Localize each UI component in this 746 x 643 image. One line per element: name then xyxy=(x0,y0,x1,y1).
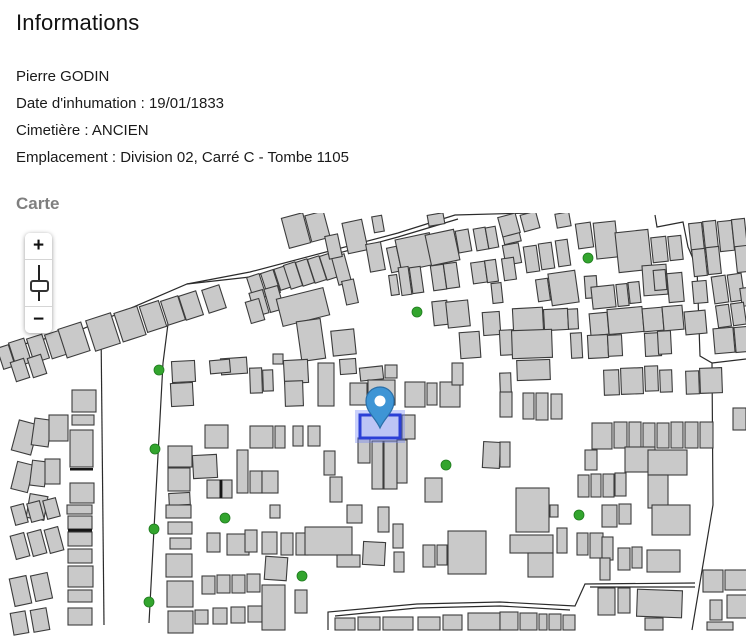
grave-plot[interactable] xyxy=(205,425,228,448)
grave-plot[interactable] xyxy=(645,618,663,630)
grave-plot[interactable] xyxy=(250,471,262,493)
grave-plot[interactable] xyxy=(405,382,425,407)
grave-plot[interactable] xyxy=(308,426,320,446)
grave-plot[interactable] xyxy=(170,382,193,406)
grave-plot[interactable] xyxy=(202,285,227,313)
grave-plot[interactable] xyxy=(385,365,397,378)
cemetery-map-canvas[interactable] xyxy=(0,213,746,643)
plot-location-line: Emplacement : Division 02, Carré C - Tom… xyxy=(16,144,730,171)
grave-plot[interactable] xyxy=(516,488,549,532)
grave-plot[interactable] xyxy=(660,370,673,392)
grave-plot[interactable] xyxy=(70,483,94,503)
grave-plot[interactable] xyxy=(549,614,561,630)
grave-plot[interactable] xyxy=(510,535,553,553)
grave-plot[interactable] xyxy=(685,422,698,448)
grave-plot[interactable] xyxy=(692,280,708,303)
grave-plot[interactable] xyxy=(285,381,304,407)
grave-plot[interactable] xyxy=(30,573,52,602)
grave-plot[interactable] xyxy=(389,275,400,296)
grave-plot[interactable] xyxy=(706,246,722,274)
grave-plot[interactable] xyxy=(619,504,631,524)
grave-plot[interactable] xyxy=(662,305,684,331)
grave-plot[interactable] xyxy=(168,468,190,491)
grave-plot[interactable] xyxy=(557,528,567,553)
grave-plot[interactable] xyxy=(171,360,195,382)
grave-plot[interactable] xyxy=(393,524,403,548)
grave-plot[interactable] xyxy=(237,450,248,493)
grave-plot[interactable] xyxy=(262,471,278,493)
grave-plot[interactable] xyxy=(275,426,285,448)
grave-plot[interactable] xyxy=(9,576,31,607)
zoom-slider-knob[interactable] xyxy=(30,280,49,292)
grave-plot[interactable] xyxy=(604,370,620,396)
zoom-in-button[interactable]: + xyxy=(25,233,52,260)
grave-plot[interactable] xyxy=(68,608,92,625)
grave-plot[interactable] xyxy=(27,530,47,557)
grave-plot[interactable] xyxy=(482,442,500,469)
grave-plot[interactable] xyxy=(305,527,352,555)
path-boundary-line xyxy=(101,327,104,625)
grave-plot[interactable] xyxy=(485,259,499,282)
grave-plot[interactable] xyxy=(523,245,539,273)
grave-plot[interactable] xyxy=(502,257,517,280)
grave-plot[interactable] xyxy=(192,454,217,478)
grave-plot[interactable] xyxy=(734,326,746,352)
grave-plot[interactable] xyxy=(703,570,723,592)
grave-plot[interactable] xyxy=(716,304,732,328)
grave-plot[interactable] xyxy=(170,538,191,549)
grave-plot[interactable] xyxy=(607,335,622,357)
grave-plot[interactable] xyxy=(593,221,619,259)
grave-plot[interactable] xyxy=(247,574,260,592)
grave-plot[interactable] xyxy=(324,451,335,475)
grave-plot[interactable] xyxy=(468,613,500,630)
grave-plot[interactable] xyxy=(30,608,50,632)
grave-plot[interactable] xyxy=(536,278,551,301)
grave-plot[interactable] xyxy=(43,498,60,520)
grave-plot[interactable] xyxy=(448,531,486,574)
grave-plot[interactable] xyxy=(603,474,614,497)
path-boundary-line xyxy=(712,359,746,363)
grave-plot[interactable] xyxy=(362,541,385,565)
grave-plot[interactable] xyxy=(731,218,746,249)
grave-plot[interactable] xyxy=(281,533,293,555)
grave-plot[interactable] xyxy=(615,473,626,496)
grave-plot[interactable] xyxy=(491,283,503,304)
grave-plot[interactable] xyxy=(577,533,588,555)
grave-plot[interactable] xyxy=(68,516,92,529)
grave-plot[interactable] xyxy=(575,222,593,249)
grave-plot[interactable] xyxy=(335,618,355,630)
grave-plot[interactable] xyxy=(550,505,558,517)
grave-plot[interactable] xyxy=(330,477,342,502)
grave-plot[interactable] xyxy=(283,359,308,383)
zoom-out-button[interactable]: − xyxy=(25,306,52,333)
grave-plot[interactable] xyxy=(167,581,193,607)
grave-plot[interactable] xyxy=(648,450,687,475)
grave-plot[interactable] xyxy=(598,588,615,615)
grave-plot[interactable] xyxy=(567,309,578,329)
grave-plot[interactable] xyxy=(166,554,192,577)
grave-plot[interactable] xyxy=(589,312,609,335)
grave-plot[interactable] xyxy=(710,600,722,620)
grave-plot[interactable] xyxy=(358,617,380,630)
grave-plot[interactable] xyxy=(68,532,92,546)
cemetery-record-page: { "page": { "title": "Informations", "ma… xyxy=(0,0,746,643)
grave-plot[interactable] xyxy=(72,390,96,412)
map-section-title: Carte xyxy=(16,194,730,214)
grave-plot[interactable] xyxy=(245,530,257,552)
grave-plot[interactable] xyxy=(528,553,553,577)
grave-plot[interactable] xyxy=(652,505,690,535)
grave-plot[interactable] xyxy=(207,533,220,552)
grave-plot[interactable] xyxy=(602,505,617,527)
grave-plot[interactable] xyxy=(347,505,362,523)
deceased-name: Pierre GODIN xyxy=(16,63,730,90)
grave-plot[interactable] xyxy=(10,611,29,635)
grave-plot[interactable] xyxy=(318,363,334,406)
grave-plot[interactable] xyxy=(342,219,368,253)
grave-plot[interactable] xyxy=(427,213,445,226)
grave-plot[interactable] xyxy=(647,550,680,572)
grave-plot[interactable] xyxy=(648,475,668,508)
grave-plot[interactable] xyxy=(671,422,683,448)
grave-plot[interactable] xyxy=(523,393,534,419)
grave-plot[interactable] xyxy=(273,354,283,364)
grave-plot[interactable] xyxy=(616,283,629,306)
grave-plot[interactable] xyxy=(67,505,92,514)
grave-plot[interactable] xyxy=(628,281,641,303)
grave-plot[interactable] xyxy=(538,242,554,270)
grave-plot[interactable] xyxy=(359,366,383,381)
grave-plot[interactable] xyxy=(700,422,713,448)
grave-plot[interactable] xyxy=(482,311,501,335)
grave-plot[interactable] xyxy=(263,370,274,391)
grave-plot[interactable] xyxy=(293,426,303,446)
grave-plot[interactable] xyxy=(585,450,597,470)
grave-plot[interactable] xyxy=(543,308,568,330)
grave-plot[interactable] xyxy=(10,533,30,560)
grave-plot[interactable] xyxy=(169,492,191,505)
grave-plot[interactable] xyxy=(168,522,192,534)
grave-plot[interactable] xyxy=(443,262,459,289)
grave-plot[interactable] xyxy=(657,423,669,448)
grave-plot[interactable] xyxy=(621,368,644,395)
grave-plot[interactable] xyxy=(703,220,719,249)
grave-plot[interactable] xyxy=(517,359,551,380)
tree-marker xyxy=(154,365,164,375)
grave-plot[interactable] xyxy=(684,310,707,335)
grave-plot[interactable] xyxy=(689,222,705,251)
grave-plot[interactable] xyxy=(250,368,263,393)
grave-plot[interactable] xyxy=(331,329,356,356)
grave-plot[interactable] xyxy=(68,590,92,602)
grave-plot[interactable] xyxy=(735,245,746,272)
grave-plot[interactable] xyxy=(653,270,667,291)
grave-plot[interactable] xyxy=(270,505,280,518)
grave-plot[interactable] xyxy=(592,423,612,449)
grave-plot[interactable] xyxy=(607,307,644,335)
tree-marker xyxy=(297,571,307,581)
grave-plot[interactable] xyxy=(70,430,93,467)
grave-plot[interactable] xyxy=(427,383,437,405)
grave-plot[interactable] xyxy=(555,213,571,228)
grave-plot[interactable] xyxy=(264,556,288,580)
grave-plot[interactable] xyxy=(378,507,389,532)
grave-plot[interactable] xyxy=(668,235,683,260)
grave-plot[interactable] xyxy=(591,474,601,497)
grave-plot[interactable] xyxy=(551,394,562,419)
grave-plot[interactable] xyxy=(536,393,548,420)
grave-plot[interactable] xyxy=(645,366,659,391)
tree-marker xyxy=(144,597,154,607)
grave-plot[interactable] xyxy=(383,617,413,630)
grave-plot[interactable] xyxy=(614,422,627,448)
grave-plot[interactable] xyxy=(700,368,723,394)
grave-plot[interactable] xyxy=(591,285,616,309)
plot-divider xyxy=(68,529,92,532)
grave-plot[interactable] xyxy=(452,363,463,385)
grave-plot[interactable] xyxy=(602,537,613,560)
grave-plot[interactable] xyxy=(425,478,442,502)
grave-plot[interactable] xyxy=(618,548,630,570)
grave-plot[interactable] xyxy=(600,558,610,580)
grave-plot[interactable] xyxy=(262,532,277,554)
grave-plot[interactable] xyxy=(578,475,589,497)
tree-marker xyxy=(150,444,160,454)
grave-plot[interactable] xyxy=(49,415,68,441)
grave-plot[interactable] xyxy=(232,575,245,593)
grave-plot[interactable] xyxy=(195,610,208,624)
grave-plot[interactable] xyxy=(498,213,521,237)
grave-plot[interactable] xyxy=(168,446,192,467)
grave-plot[interactable] xyxy=(372,441,383,489)
page-title: Informations xyxy=(16,10,730,36)
grave-plot[interactable] xyxy=(539,614,547,630)
tree-marker xyxy=(412,307,422,317)
grave-plot[interactable] xyxy=(512,329,553,358)
tree-marker xyxy=(220,513,230,523)
grave-plot[interactable] xyxy=(651,236,669,262)
grave-plot[interactable] xyxy=(168,611,193,633)
tree-marker xyxy=(149,524,159,534)
grave-plot[interactable] xyxy=(45,459,60,484)
grave-plot[interactable] xyxy=(166,505,191,518)
cemetery-line: Cimetière : ANCIEN xyxy=(16,117,730,144)
grave-plot[interactable] xyxy=(295,590,307,613)
grave-plot[interactable] xyxy=(707,622,733,630)
grave-plot[interactable] xyxy=(350,383,367,405)
grave-plot[interactable] xyxy=(72,415,94,425)
grave-plot[interactable] xyxy=(667,272,684,302)
zoom-slider[interactable] xyxy=(25,260,52,306)
tree-marker xyxy=(583,253,593,263)
grave-plot[interactable] xyxy=(512,307,543,333)
grave-plot[interactable] xyxy=(520,613,537,630)
grave-plot[interactable] xyxy=(587,334,608,358)
tree-marker xyxy=(574,510,584,520)
grave-plot[interactable] xyxy=(563,615,575,630)
burial-date-line: Date d'inhumation : 19/01/1833 xyxy=(16,90,730,117)
grave-plot[interactable] xyxy=(418,617,440,630)
grave-plot[interactable] xyxy=(500,612,518,630)
grave-plot[interactable] xyxy=(618,588,630,613)
record-info-block: Pierre GODIN Date d'inhumation : 19/01/1… xyxy=(16,63,730,171)
cemetery-map[interactable]: + − xyxy=(0,213,746,643)
grave-plot[interactable] xyxy=(637,589,683,618)
grave-plot[interactable] xyxy=(213,608,227,624)
grave-plot[interactable] xyxy=(250,426,273,448)
grave-plot[interactable] xyxy=(440,382,460,407)
grave-plot[interactable] xyxy=(397,440,407,483)
tree-marker xyxy=(441,460,451,470)
grave-plot[interactable] xyxy=(711,275,729,304)
grave-plot[interactable] xyxy=(384,441,397,489)
grave-plot[interactable] xyxy=(570,333,582,359)
grave-plot[interactable] xyxy=(713,327,735,354)
plot-divider xyxy=(220,480,223,498)
grave-plot[interactable] xyxy=(500,442,510,467)
grave-plot[interactable] xyxy=(629,422,641,448)
grave-plot[interactable] xyxy=(632,547,642,568)
grave-plot[interactable] xyxy=(248,606,262,622)
grave-plot[interactable] xyxy=(725,570,746,590)
grave-plot[interactable] xyxy=(500,392,512,417)
grave-plot[interactable] xyxy=(11,504,28,526)
grave-plot[interactable] xyxy=(217,575,230,593)
grave-plot[interactable] xyxy=(337,555,360,567)
grave-plot[interactable] xyxy=(727,595,746,618)
grave-plot[interactable] xyxy=(731,302,746,326)
grave-plot[interactable] xyxy=(366,242,386,272)
grave-plot[interactable] xyxy=(372,215,385,232)
plot-divider xyxy=(70,468,93,471)
grave-plot[interactable] xyxy=(686,371,700,394)
grave-plot[interactable] xyxy=(339,358,356,374)
grave-plot[interactable] xyxy=(231,607,245,623)
record-content: Informations Pierre GODIN Date d'inhumat… xyxy=(0,0,746,214)
grave-plot[interactable] xyxy=(68,566,93,587)
grave-plot[interactable] xyxy=(296,319,325,362)
grave-plot[interactable] xyxy=(692,248,708,276)
grave-plot[interactable] xyxy=(44,527,64,554)
grave-plot[interactable] xyxy=(555,239,571,266)
grave-plot[interactable] xyxy=(500,373,512,393)
grave-plot[interactable] xyxy=(202,576,215,594)
grave-plot[interactable] xyxy=(520,213,540,232)
grave-plot[interactable] xyxy=(642,307,664,332)
grave-plot[interactable] xyxy=(394,552,404,572)
grave-plot[interactable] xyxy=(590,533,603,558)
location-marker-hole xyxy=(375,396,386,407)
grave-plot[interactable] xyxy=(443,615,462,630)
grave-plot[interactable] xyxy=(657,331,671,355)
grave-plot[interactable] xyxy=(425,229,460,265)
grave-plot[interactable] xyxy=(68,549,92,563)
grave-plot[interactable] xyxy=(459,331,481,358)
grave-plot[interactable] xyxy=(342,279,359,305)
grave-plot[interactable] xyxy=(548,270,579,305)
grave-plot[interactable] xyxy=(423,545,435,567)
grave-plot[interactable] xyxy=(262,585,285,630)
grave-plot[interactable] xyxy=(733,408,746,430)
grave-plot[interactable] xyxy=(643,423,655,448)
grave-plot[interactable] xyxy=(446,300,471,328)
grave-plot[interactable] xyxy=(209,359,230,374)
map-zoom-control: + − xyxy=(25,233,52,333)
grave-plot[interactable] xyxy=(222,480,232,498)
grave-plot[interactable] xyxy=(437,545,447,565)
